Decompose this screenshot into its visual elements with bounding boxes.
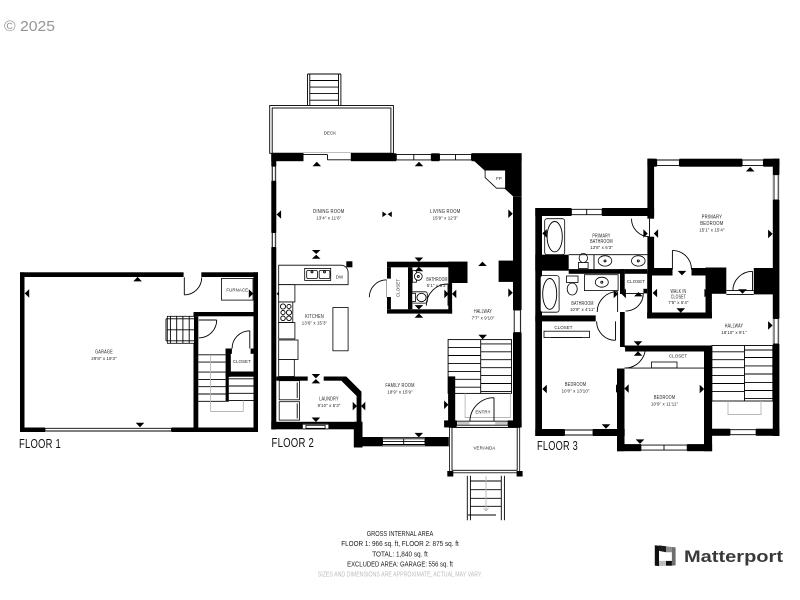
svg-text:LIVING ROOM: LIVING ROOM (430, 209, 460, 215)
svg-text:13'8" x 6'3": 13'8" x 6'3" (590, 245, 613, 250)
svg-text:KITCHEN: KITCHEN (305, 314, 324, 320)
svg-text:CLOSET: CLOSET (627, 279, 645, 284)
svg-text:15'9" x 12'3": 15'9" x 12'3" (433, 216, 459, 221)
svg-text:FLOOR 1: FLOOR 1 (19, 436, 61, 451)
svg-text:CLOSET: CLOSET (233, 359, 251, 364)
svg-text:BEDROOM: BEDROOM (700, 221, 723, 227)
svg-text:7'5" x 5'4": 7'5" x 5'4" (668, 300, 689, 305)
svg-text:29'8" x 19'3": 29'8" x 19'3" (91, 356, 117, 361)
svg-text:DECK: DECK (324, 131, 337, 136)
svg-text:LAUNDRY: LAUNDRY (319, 397, 339, 403)
svg-text:EXCLUDED AREA: GARAGE: 556 sq.: EXCLUDED AREA: GARAGE: 556 sq. ft (347, 560, 453, 569)
svg-text:FLOOR 1: 966 sq. ft, FLOOR 2:: FLOOR 1: 966 sq. ft, FLOOR 2: 875 sq. ft (341, 539, 459, 548)
svg-text:DINING ROOM: DINING ROOM (313, 209, 344, 215)
svg-text:13'6" x 15'3": 13'6" x 15'3" (302, 321, 328, 326)
svg-text:FLOOR 2: FLOOR 2 (272, 435, 315, 450)
svg-text:10'0" x 13'10": 10'0" x 13'10" (562, 389, 590, 394)
svg-text:18'10" x 9'1": 18'10" x 9'1" (721, 330, 747, 335)
svg-text:9'10" x 5'3": 9'10" x 5'3" (318, 403, 341, 408)
svg-text:10'9" x 11'11": 10'9" x 11'11" (651, 402, 679, 407)
svg-text:VERANDA: VERANDA (474, 446, 496, 451)
svg-text:10'9" x 4'11": 10'9" x 4'11" (570, 307, 595, 312)
svg-text:FP: FP (496, 176, 502, 181)
svg-text:GARAGE: GARAGE (95, 350, 113, 356)
svg-text:13'4" x 11'6": 13'4" x 11'6" (316, 216, 341, 221)
svg-text:PRIMARY: PRIMARY (702, 215, 723, 221)
svg-text:15'1" x 15'4": 15'1" x 15'4" (699, 228, 725, 233)
svg-text:ENTRY: ENTRY (475, 410, 490, 415)
svg-text:HALLWAY: HALLWAY (725, 324, 744, 330)
svg-text:BEDROOM: BEDROOM (565, 382, 586, 388)
svg-text:TOTAL: 1,840 sq. ft: TOTAL: 1,840 sq. ft (372, 549, 428, 558)
svg-text:SIZES AND DIMENSIONS ARE APPRO: SIZES AND DIMENSIONS ARE APPROXIMATE, AC… (318, 570, 483, 579)
svg-text:© 2025: © 2025 (4, 19, 55, 35)
svg-text:BEDROOM: BEDROOM (654, 395, 675, 401)
svg-text:18'9" x 15'9": 18'9" x 15'9" (387, 390, 413, 395)
svg-text:Matterport: Matterport (684, 548, 784, 566)
svg-text:DW: DW (336, 275, 344, 280)
svg-text:CLOSET: CLOSET (554, 325, 572, 330)
svg-text:FAMILY ROOM: FAMILY ROOM (385, 383, 414, 389)
svg-text:CLOSET: CLOSET (396, 279, 401, 297)
svg-text:HALLWAY: HALLWAY (474, 309, 492, 315)
svg-text:GROSS INTERNAL AREA: GROSS INTERNAL AREA (367, 529, 434, 538)
svg-text:FURNACE: FURNACE (226, 288, 248, 293)
svg-text:7'7" x 9'10": 7'7" x 9'10" (472, 316, 495, 321)
svg-text:FLOOR 3: FLOOR 3 (537, 438, 578, 453)
svg-text:CLOSET: CLOSET (669, 354, 687, 359)
